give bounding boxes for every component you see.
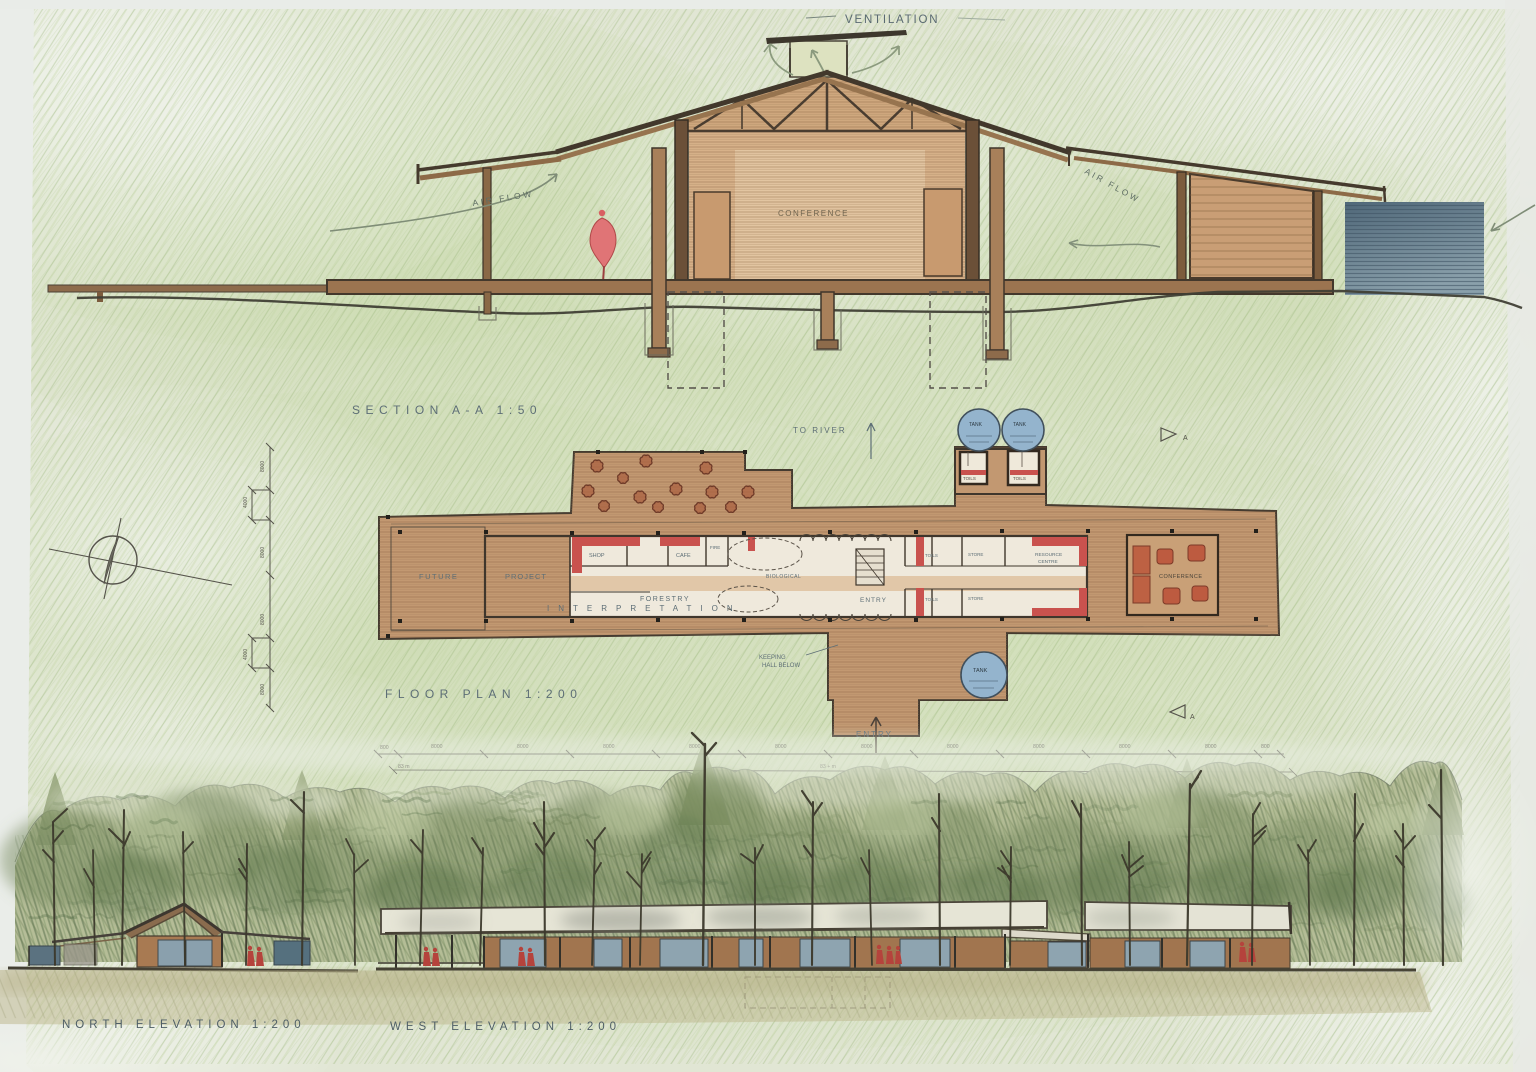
svg-text:TOILS: TOILS [1013, 476, 1026, 481]
svg-text:CONFERENCE: CONFERENCE [778, 209, 849, 218]
svg-text:PROJECT: PROJECT [505, 572, 547, 581]
svg-text:A: A [1190, 714, 1195, 721]
svg-text:HALL BELOW: HALL BELOW [762, 663, 800, 669]
svg-text:RESOURCE: RESOURCE [1035, 552, 1062, 558]
svg-text:CAFE: CAFE [676, 553, 691, 559]
svg-text:STORE: STORE [968, 596, 983, 601]
svg-text:VENTILATION: VENTILATION [845, 14, 939, 26]
svg-text:BIOLOGICAL: BIOLOGICAL [766, 574, 801, 580]
svg-text:WEST ELEVATION 1:200: WEST ELEVATION 1:200 [390, 1021, 621, 1033]
svg-text:8000: 8000 [260, 547, 266, 558]
svg-text:INTERPRETATION: INTERPRETATION [547, 604, 742, 613]
svg-text:TOILS: TOILS [925, 597, 938, 602]
svg-text:SECTION A-A 1:50: SECTION A-A 1:50 [352, 403, 542, 417]
svg-text:FORESTRY: FORESTRY [640, 596, 690, 603]
svg-text:8000: 8000 [260, 614, 266, 625]
svg-text:CONFERENCE: CONFERENCE [1159, 574, 1203, 580]
svg-text:TANK: TANK [973, 668, 988, 674]
svg-text:8000: 8000 [260, 461, 266, 472]
svg-text:TANK: TANK [969, 422, 983, 428]
svg-text:4000: 4000 [243, 497, 249, 508]
svg-text:TOILS: TOILS [963, 476, 976, 481]
svg-text:8000: 8000 [260, 684, 266, 695]
svg-text:SHOP: SHOP [589, 553, 605, 559]
svg-text:FIRE: FIRE [710, 545, 720, 550]
svg-text:4000: 4000 [243, 649, 249, 660]
svg-text:FUTURE: FUTURE [419, 572, 458, 581]
svg-text:TOILS: TOILS [925, 553, 938, 558]
svg-text:FLOOR PLAN 1:200: FLOOR PLAN 1:200 [385, 687, 582, 701]
svg-text:A: A [1183, 435, 1188, 442]
svg-text:TO RIVER: TO RIVER [793, 426, 847, 435]
svg-text:STORE: STORE [968, 552, 983, 557]
svg-text:ENTRY: ENTRY [860, 597, 887, 604]
svg-text:NORTH ELEVATION 1:200: NORTH ELEVATION 1:200 [62, 1019, 306, 1031]
svg-text:KEEPING: KEEPING [759, 655, 786, 661]
svg-text:TANK: TANK [1013, 422, 1027, 428]
svg-text:CENTRE: CENTRE [1038, 559, 1058, 565]
